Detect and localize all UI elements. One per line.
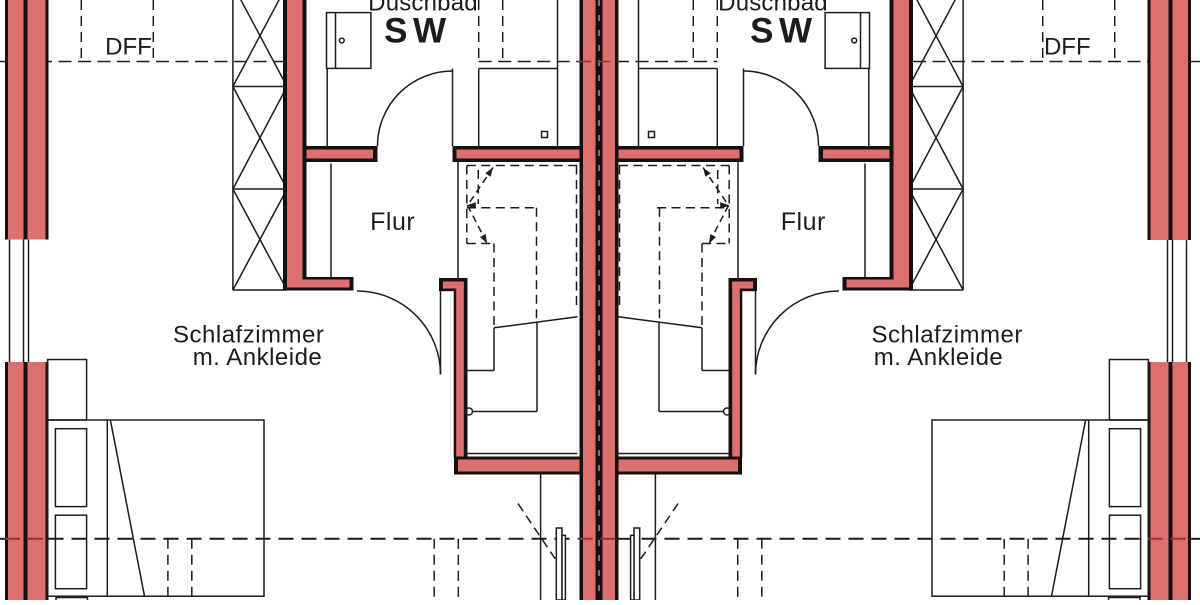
svg-text:m. Ankleide: m. Ankleide — [874, 344, 1004, 371]
svg-text:Flur: Flur — [781, 208, 826, 236]
svg-text:DFF: DFF — [105, 34, 152, 61]
svg-text:SW: SW — [750, 12, 817, 51]
svg-text:SW: SW — [384, 12, 451, 51]
svg-text:DFF: DFF — [1044, 34, 1091, 61]
svg-text:Flur: Flur — [370, 208, 415, 236]
svg-text:m. Ankleide: m. Ankleide — [193, 344, 323, 371]
